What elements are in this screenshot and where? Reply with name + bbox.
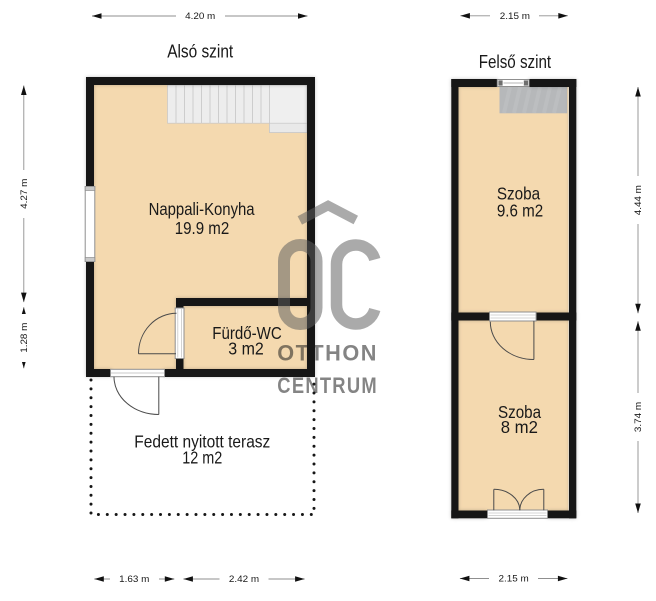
svg-text:CENTRUM: CENTRUM bbox=[277, 373, 378, 398]
svg-text:1.63 m: 1.63 m bbox=[119, 574, 149, 585]
svg-text:12 m2: 12 m2 bbox=[182, 448, 222, 468]
svg-text:9.6 m2: 9.6 m2 bbox=[497, 201, 543, 221]
svg-text:4.44 m: 4.44 m bbox=[633, 185, 644, 215]
svg-text:4.27 m: 4.27 m bbox=[19, 179, 30, 209]
svg-text:4.20 m: 4.20 m bbox=[185, 11, 215, 22]
svg-text:19.9 m2: 19.9 m2 bbox=[175, 218, 229, 238]
svg-text:Nappali-Konyha: Nappali-Konyha bbox=[149, 199, 255, 219]
svg-text:2.15 m: 2.15 m bbox=[499, 574, 529, 585]
svg-text:Felső szint: Felső szint bbox=[479, 52, 551, 72]
svg-text:Alsó szint: Alsó szint bbox=[167, 42, 233, 62]
svg-text:2.42 m: 2.42 m bbox=[229, 574, 259, 585]
svg-text:3.74 m: 3.74 m bbox=[633, 402, 644, 432]
svg-text:8 m2: 8 m2 bbox=[501, 417, 538, 437]
svg-text:3 m2: 3 m2 bbox=[228, 338, 264, 358]
svg-text:OTTHON: OTTHON bbox=[277, 341, 378, 366]
svg-text:2.15 m: 2.15 m bbox=[500, 11, 530, 22]
svg-text:1.28 m: 1.28 m bbox=[19, 323, 30, 353]
